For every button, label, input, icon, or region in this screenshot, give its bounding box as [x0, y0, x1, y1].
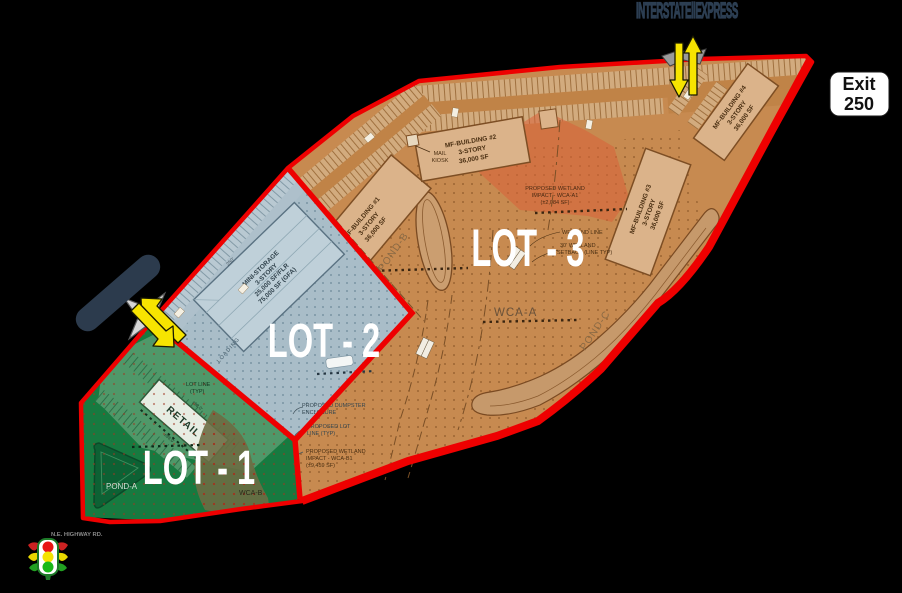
svg-text:(TYP): (TYP) — [190, 389, 205, 395]
svg-text:MAIL: MAIL — [434, 151, 447, 157]
svg-text:IMPACT - WCA-A1: IMPACT - WCA-A1 — [532, 193, 579, 199]
svg-text:PROPOSED DUMPSTER: PROPOSED DUMPSTER — [302, 403, 366, 409]
svg-text:KIOSK: KIOSK — [432, 158, 449, 164]
svg-text:Exit: Exit — [842, 74, 875, 94]
svg-text:WCA-A: WCA-A — [494, 307, 537, 319]
svg-text:IMPACT - WCA-B1: IMPACT - WCA-B1 — [306, 456, 353, 462]
svg-text:LINE (TYP): LINE (TYP) — [307, 431, 335, 437]
svg-text:POND-A: POND-A — [106, 482, 138, 491]
svg-text:PROPOSED WETLAND: PROPOSED WETLAND — [306, 449, 366, 455]
svg-text:(±9,459 SF): (±9,459 SF) — [306, 463, 335, 469]
svg-text:INTERSTATE‖EXPRESS: INTERSTATE‖EXPRESS — [636, 0, 738, 23]
svg-text:LOT - 3: LOT - 3 — [471, 219, 584, 278]
svg-text:N.E. HIGHWAY RD.: N.E. HIGHWAY RD. — [51, 532, 103, 538]
svg-text:LOT - 1: LOT - 1 — [143, 441, 255, 495]
svg-text:LOT - 2: LOT - 2 — [268, 314, 380, 368]
svg-text:PROPOSED LOT: PROPOSED LOT — [307, 424, 351, 430]
svg-text:LOT LINE: LOT LINE — [186, 382, 211, 388]
svg-text:250: 250 — [844, 94, 874, 114]
svg-text:PROPOSED WETLAND: PROPOSED WETLAND — [525, 186, 585, 192]
svg-text:(±2,084 SF): (±2,084 SF) — [540, 200, 569, 206]
